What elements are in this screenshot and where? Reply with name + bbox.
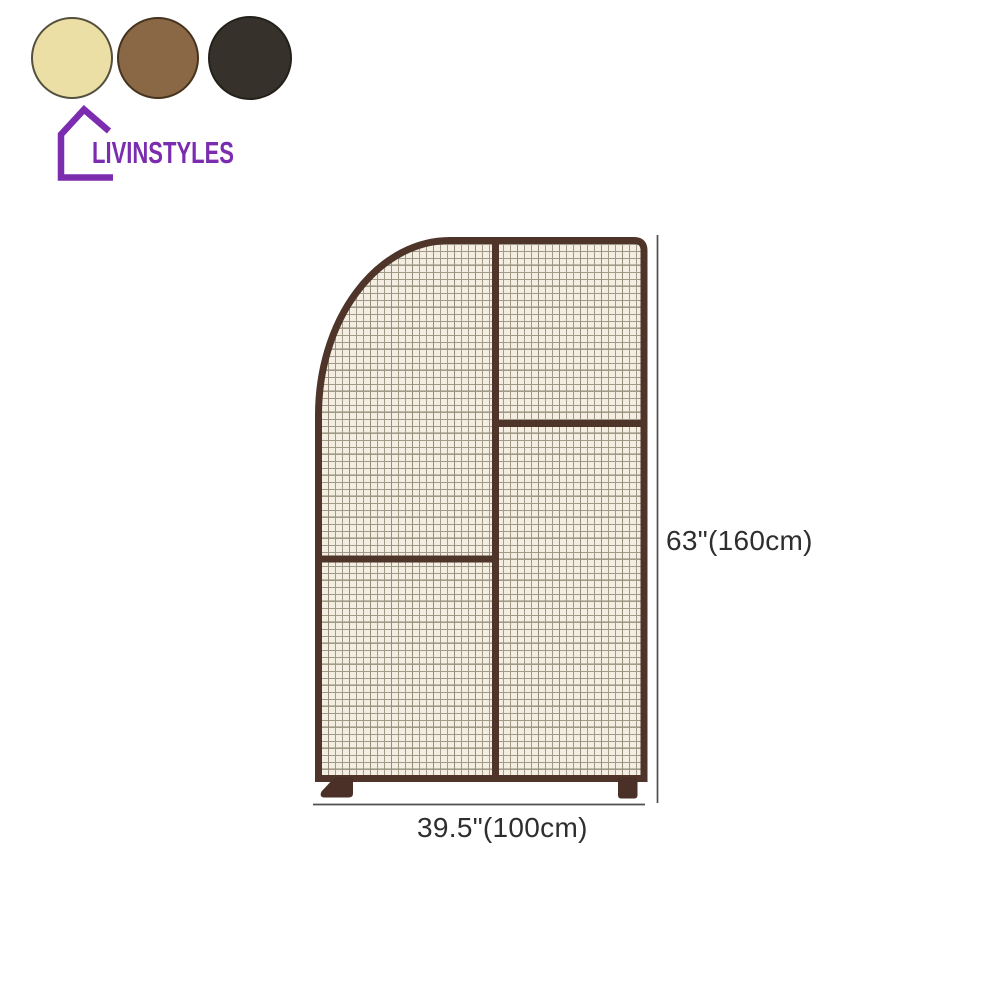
product-image-page: LIVINSTYLES 63"(160cm) 39.5"(100cm) — [0, 0, 1000, 1000]
screen-mesh-texture — [319, 241, 645, 779]
width-dimension-label: 39.5"(100cm) — [417, 812, 588, 844]
color-swatch-group — [32, 17, 291, 99]
product-scene: LIVINSTYLES — [0, 0, 1000, 1000]
brand-logo-text: LIVINSTYLES — [92, 135, 234, 170]
color-swatch-cream[interactable] — [32, 18, 112, 98]
color-swatch-dark-brown[interactable] — [209, 17, 291, 99]
color-swatch-brown[interactable] — [118, 18, 198, 98]
product-screen — [316, 240, 646, 799]
screen-foot-right — [618, 777, 638, 799]
brand-logo: LIVINSTYLES — [61, 110, 234, 178]
height-dimension-label: 63"(160cm) — [666, 525, 813, 557]
